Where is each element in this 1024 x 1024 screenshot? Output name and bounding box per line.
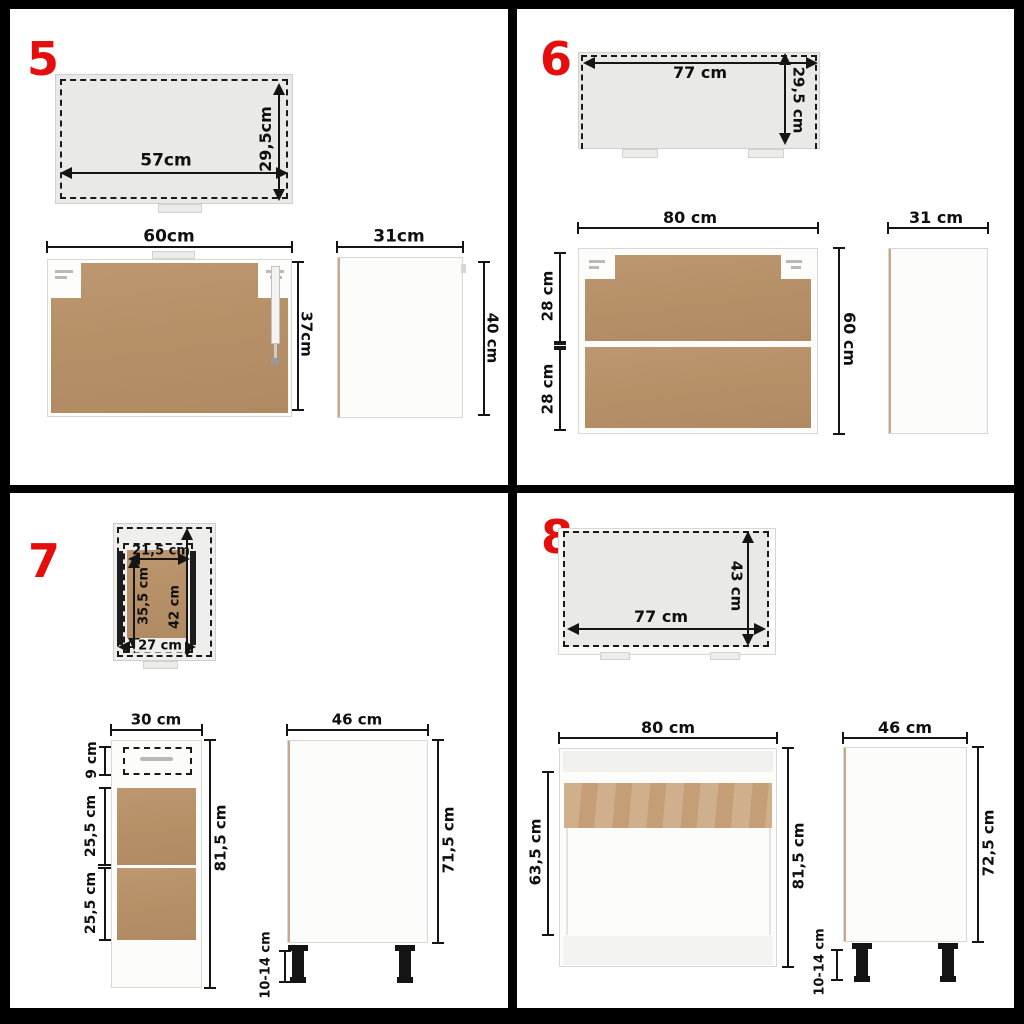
q5-top-view-dashed-outline: [60, 79, 288, 199]
q5-side-width-label: 31cm: [373, 229, 424, 246]
q7-lower-section-line: [104, 868, 106, 940]
q7-outer-depth-arrow: [186, 530, 188, 655]
q6-break-mark-1: [554, 343, 566, 345]
q6-lower-section-line: [559, 349, 561, 430]
q7-right-foot-stem: [399, 951, 411, 977]
q8-door-height-arrow: [747, 533, 749, 644]
q8-front-view-cabinet: [559, 748, 777, 967]
q5-front-width-label: 60cm: [143, 229, 194, 246]
frame-bottom: [0, 1008, 1024, 1024]
q7-left-foot-stem: [292, 951, 304, 977]
q8-door-width-arrow: [569, 628, 764, 630]
q7-front-width-label: 30 cm: [131, 713, 182, 728]
q7-inner-depth-arrow: [133, 558, 135, 648]
q8-opening-height-label: 63,5 cm: [529, 819, 544, 886]
q8-front-width-line: [559, 737, 777, 739]
q7-leg-height-line: [284, 951, 286, 982]
q7-lower-section-label: 25,5 cm: [84, 872, 98, 934]
q7-side-height-label: 71,5 cm: [442, 807, 457, 874]
q5-top-width-label: 57cm: [140, 153, 191, 170]
frame-left: [0, 0, 10, 1024]
q5-hinge-hardware-left: [55, 270, 73, 273]
q8-side-edge-band: [844, 748, 846, 941]
q7-drawer-slide-right: [190, 551, 196, 645]
q8-plinth: [563, 936, 773, 965]
q8-door-width-label: 77 cm: [634, 609, 688, 625]
q6-side-view-panel: [888, 248, 988, 434]
q6-hinge-hardware-left-2: [589, 266, 599, 269]
q7-right-foot-base: [397, 977, 413, 983]
q7-drawer-front-dashed: [123, 747, 192, 775]
q6-upper-section-label: 28 cm: [541, 271, 556, 322]
q5-front-top-tab: [152, 251, 195, 259]
q7-drawer-slide-left: [117, 551, 123, 645]
q8-leg-height-line: [836, 950, 838, 980]
q8-front-wood-strip: [564, 783, 772, 828]
q6-hinge-hardware-left: [589, 260, 605, 263]
frame-right: [1014, 0, 1024, 1024]
q7-drawer-height-line: [104, 747, 106, 775]
q8-top-rail: [563, 751, 773, 772]
q7-front-height-label: 81,5 cm: [214, 805, 229, 872]
q8-door-hinge-tab-right: [710, 652, 740, 660]
q5-top-depth-label: 29,5cm: [258, 106, 274, 172]
q7-front-lower-panel: [117, 868, 196, 940]
q8-door-hinge-tab-left: [600, 652, 630, 660]
q8-opening-left-edge: [566, 828, 568, 935]
q6-front-width-line: [578, 227, 818, 229]
panel-6-number: 6: [540, 36, 572, 82]
q8-opening-right-edge: [769, 828, 771, 935]
q7-side-edge-band: [288, 741, 290, 942]
q5-side-height-label: 40 cm: [485, 313, 500, 364]
q7-break-mark-1: [98, 864, 110, 866]
q6-break-mark-2: [554, 346, 566, 348]
q7-outer-depth-label: 42 cm: [169, 585, 182, 629]
q8-leg-height-label: 10-14 cm: [814, 928, 827, 995]
q5-width-arrow: [62, 172, 286, 174]
q8-opening-height-line: [547, 772, 549, 935]
q8-front-width-label: 80 cm: [641, 720, 695, 736]
q6-door-hinge-tab-right: [748, 149, 784, 158]
q7-upper-section-line: [104, 788, 106, 865]
q8-side-view-panel: [843, 747, 967, 942]
q5-side-view-panel: [337, 257, 463, 418]
q6-door-width-label: 77 cm: [673, 65, 727, 81]
q6-upper-section-line: [559, 253, 561, 342]
q7-side-view-panel: [287, 740, 428, 943]
q8-side-height-label: 72,5 cm: [982, 810, 997, 877]
q6-door-height-arrow: [784, 55, 786, 143]
q7-drawer-tab: [143, 661, 178, 669]
q7-drawer-handle: [140, 757, 173, 761]
q6-door-height-label: 29,5 cm: [791, 67, 806, 134]
q5-hinge-hardware-left-2: [55, 276, 67, 279]
q5-side-edge-band: [338, 258, 340, 417]
q8-side-depth-line: [843, 737, 967, 739]
q8-left-foot-stem: [856, 949, 868, 976]
q5-side-notch: [461, 264, 466, 273]
panel-7-number: 7: [28, 538, 60, 584]
q8-right-foot-stem: [942, 949, 954, 976]
q8-door-height-label: 43 cm: [729, 561, 744, 612]
q6-lower-section-label: 28 cm: [541, 364, 556, 415]
cabinet-dimension-sheet: 5 57cm 29,5cm 60cm 37cm 31cm 40 cm: [0, 0, 1024, 1024]
q6-side-width-label: 31 cm: [909, 210, 963, 226]
q7-left-foot-base: [290, 977, 306, 983]
q7-side-depth-line: [287, 729, 428, 731]
q6-front-width-label: 80 cm: [663, 210, 717, 226]
q7-leg-height-label: 10-14 cm: [260, 931, 273, 998]
q8-side-depth-label: 46 cm: [878, 720, 932, 736]
q6-hinge-hardware-right-2: [791, 266, 801, 269]
q5-gas-strut-tip: [271, 358, 279, 365]
q7-side-depth-label: 46 cm: [332, 713, 383, 728]
q7-inner-depth-label: 35,5 cm: [138, 567, 151, 625]
divider-vertical: [508, 9, 517, 1008]
q8-left-foot-base: [854, 976, 870, 982]
q5-depth-arrow: [278, 85, 280, 199]
q8-right-foot-base: [940, 976, 956, 982]
q6-side-edge-band: [889, 249, 891, 433]
q6-front-lower-panel: [585, 347, 811, 428]
q7-front-width-line: [111, 729, 202, 731]
q7-outer-width-label: 27 cm: [135, 640, 185, 653]
q5-front-height-label: 37cm: [299, 311, 314, 356]
q7-front-upper-panel: [117, 788, 196, 865]
q8-front-height-label: 81,5 cm: [792, 823, 807, 890]
q7-drawer-height-label: 9 cm: [85, 741, 99, 779]
q7-upper-section-label: 25,5 cm: [84, 795, 98, 857]
q6-front-upper-panel: [585, 255, 811, 341]
q6-front-height-label: 60 cm: [841, 312, 857, 366]
q5-front-back-panel: [51, 263, 288, 413]
q6-hinge-hardware-right: [786, 260, 802, 263]
q5-gas-strut: [271, 266, 280, 344]
q6-door-hinge-tab-left: [622, 149, 658, 158]
q5-hinge-notch-left: [51, 263, 81, 298]
divider-horizontal: [10, 485, 1014, 493]
q5-top-view-hinge-tab: [158, 204, 202, 213]
q7-break-mark-2: [98, 867, 110, 869]
frame-top: [0, 0, 1024, 9]
q6-side-width-line: [888, 227, 988, 229]
